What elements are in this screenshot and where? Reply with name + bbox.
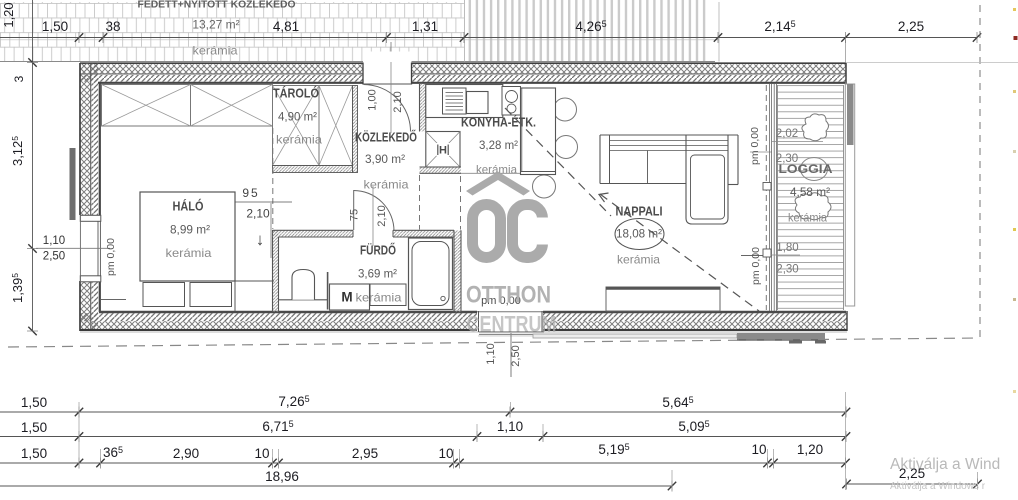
svg-text:95: 95 (242, 186, 259, 200)
svg-text:1,50: 1,50 (21, 446, 47, 461)
svg-text:FÜRDŐ: FÜRDŐ (360, 243, 396, 258)
svg-text:pm 0,00: pm 0,00 (750, 247, 762, 285)
svg-text:KÖZLEKEDŐ: KÖZLEKEDŐ (355, 130, 417, 145)
svg-text:pm 0,00: pm 0,00 (749, 127, 761, 165)
svg-text:1,50: 1,50 (21, 395, 47, 410)
svg-text:2,145: 2,145 (764, 19, 795, 34)
svg-text:TÁROLÓ: TÁROLÓ (273, 86, 319, 101)
svg-text:3,69 m²: 3,69 m² (358, 267, 397, 281)
svg-text:5,195: 5,195 (598, 442, 629, 457)
svg-text:kerámia: kerámia (617, 253, 660, 267)
svg-text:365: 365 (103, 445, 123, 460)
svg-text:18,96: 18,96 (265, 469, 299, 484)
svg-text:75: 75 (349, 209, 361, 221)
svg-text:kerámia: kerámia (276, 133, 322, 147)
svg-text:kerámia: kerámia (364, 178, 409, 192)
svg-text:3,125: 3,125 (10, 136, 25, 166)
svg-text:2,50: 2,50 (510, 345, 522, 366)
svg-text:pm 0,00: pm 0,00 (105, 238, 117, 276)
svg-text:1,31: 1,31 (412, 19, 438, 34)
svg-text:↓: ↓ (256, 230, 265, 249)
svg-text:2,95: 2,95 (352, 446, 378, 461)
svg-text:4,58 m²: 4,58 m² (790, 185, 830, 199)
svg-text:1,50: 1,50 (42, 19, 68, 34)
svg-text:2,50: 2,50 (43, 251, 65, 263)
svg-text:3,28 m²: 3,28 m² (479, 138, 518, 152)
svg-text:5,095: 5,095 (678, 419, 709, 434)
svg-text:H: H (439, 145, 447, 157)
svg-text:kerámia: kerámia (356, 291, 402, 305)
svg-text:10: 10 (254, 446, 269, 461)
svg-text:2,30: 2,30 (776, 264, 798, 276)
svg-text:6,715: 6,715 (262, 419, 293, 434)
svg-text:2,10: 2,10 (392, 91, 404, 112)
svg-text:2,10: 2,10 (246, 207, 270, 221)
svg-text:2,02: 2,02 (776, 128, 798, 140)
svg-text:1,00: 1,00 (367, 89, 379, 110)
svg-text:13,27 m²: 13,27 m² (192, 18, 239, 32)
svg-text:1,20: 1,20 (797, 442, 823, 457)
svg-text:KONYHA-ÉTK.: KONYHA-ÉTK. (461, 115, 536, 130)
svg-text:2,25: 2,25 (898, 19, 924, 34)
svg-text:FEDETT+NYITOTT KÖZLEKEDŐ: FEDETT+NYITOTT KÖZLEKEDŐ (138, 0, 296, 11)
svg-text:38: 38 (105, 19, 120, 34)
svg-text:HÁLÓ: HÁLÓ (173, 199, 204, 214)
svg-text:8,99 m²: 8,99 m² (170, 223, 210, 237)
svg-text:CENTRUM: CENTRUM (467, 312, 557, 337)
svg-text:18,08 m²: 18,08 m² (616, 227, 662, 241)
svg-text:10: 10 (751, 442, 766, 457)
svg-text:7,265: 7,265 (278, 394, 309, 409)
svg-text:5,645: 5,645 (662, 395, 693, 410)
svg-text:4,90 m²: 4,90 m² (278, 110, 317, 124)
svg-text:10: 10 (438, 446, 453, 461)
svg-text:Aktiválja a Windows r: Aktiválja a Windows r (890, 481, 986, 492)
svg-text:kerámia: kerámia (193, 44, 238, 58)
svg-text:NAPPALI: NAPPALI (616, 204, 663, 219)
svg-text:2,25: 2,25 (899, 466, 925, 481)
svg-text:2,90: 2,90 (173, 446, 199, 461)
svg-text:2,30: 2,30 (776, 153, 798, 165)
svg-text:3: 3 (12, 75, 26, 82)
svg-text:1,395: 1,395 (10, 273, 25, 303)
svg-text:OTTHON: OTTHON (466, 282, 551, 309)
svg-text:1,10: 1,10 (43, 235, 65, 247)
svg-text:3,90 m²: 3,90 m² (365, 152, 405, 166)
svg-text:2,10: 2,10 (376, 205, 388, 226)
svg-text:kerámia: kerámia (166, 246, 212, 260)
svg-text:1,80: 1,80 (776, 242, 798, 254)
svg-text:1,50: 1,50 (21, 420, 47, 435)
svg-text:4,81: 4,81 (273, 19, 299, 34)
svg-text:1,10: 1,10 (497, 419, 523, 434)
svg-text:1,20: 1,20 (1, 2, 16, 27)
svg-text:M: M (341, 290, 352, 305)
svg-text:kerámia: kerámia (788, 211, 827, 225)
svg-text:1,10: 1,10 (485, 343, 497, 364)
